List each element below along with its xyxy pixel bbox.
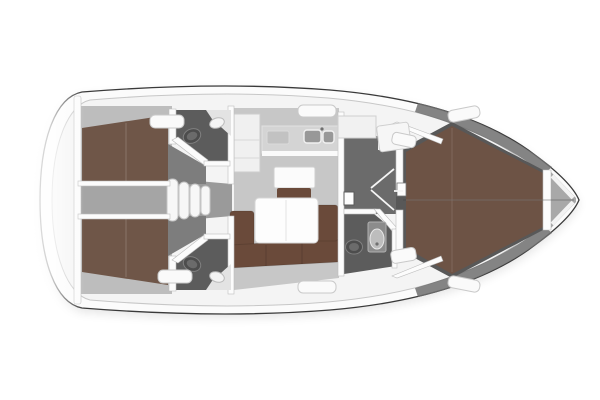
mast-step [344, 192, 354, 205]
cabin-door-panel [397, 183, 406, 196]
corridor-end-wall-starboard [396, 210, 403, 250]
washbasin [370, 229, 384, 249]
stove [267, 131, 289, 144]
sink-bowl-left [304, 130, 321, 143]
deck-hatch [447, 105, 481, 123]
yacht-floor-plan [0, 0, 600, 400]
galley-side-cabinet [234, 114, 260, 172]
faucet [320, 127, 323, 130]
step-tread [201, 186, 210, 215]
basin-drain [375, 242, 378, 245]
deck-hatch [150, 115, 184, 128]
deck-hatch [158, 270, 192, 283]
engine-wall-port [78, 181, 170, 186]
aft-head-starboard-low-wall [204, 234, 230, 239]
toilet-seat [349, 243, 359, 251]
engine-wall-starboard [78, 214, 170, 219]
wardrobe-cabinet [338, 116, 376, 138]
swim-platform-fade [10, 76, 84, 324]
step-tread [179, 182, 189, 219]
deck-hatch [298, 105, 336, 117]
nav-table-top [274, 167, 315, 188]
floor-plan-canvas [0, 0, 600, 400]
sink-bowl-right [323, 131, 334, 143]
forward-head-top-wall [344, 209, 376, 214]
engine-compartment [80, 185, 168, 215]
sofa-right-arm [316, 205, 338, 241]
galley-counter-edge [262, 151, 338, 156]
deck-hatch [298, 281, 336, 293]
step-tread [190, 184, 200, 217]
aft-head-port-low-wall [204, 161, 230, 166]
nav-table [274, 167, 315, 201]
